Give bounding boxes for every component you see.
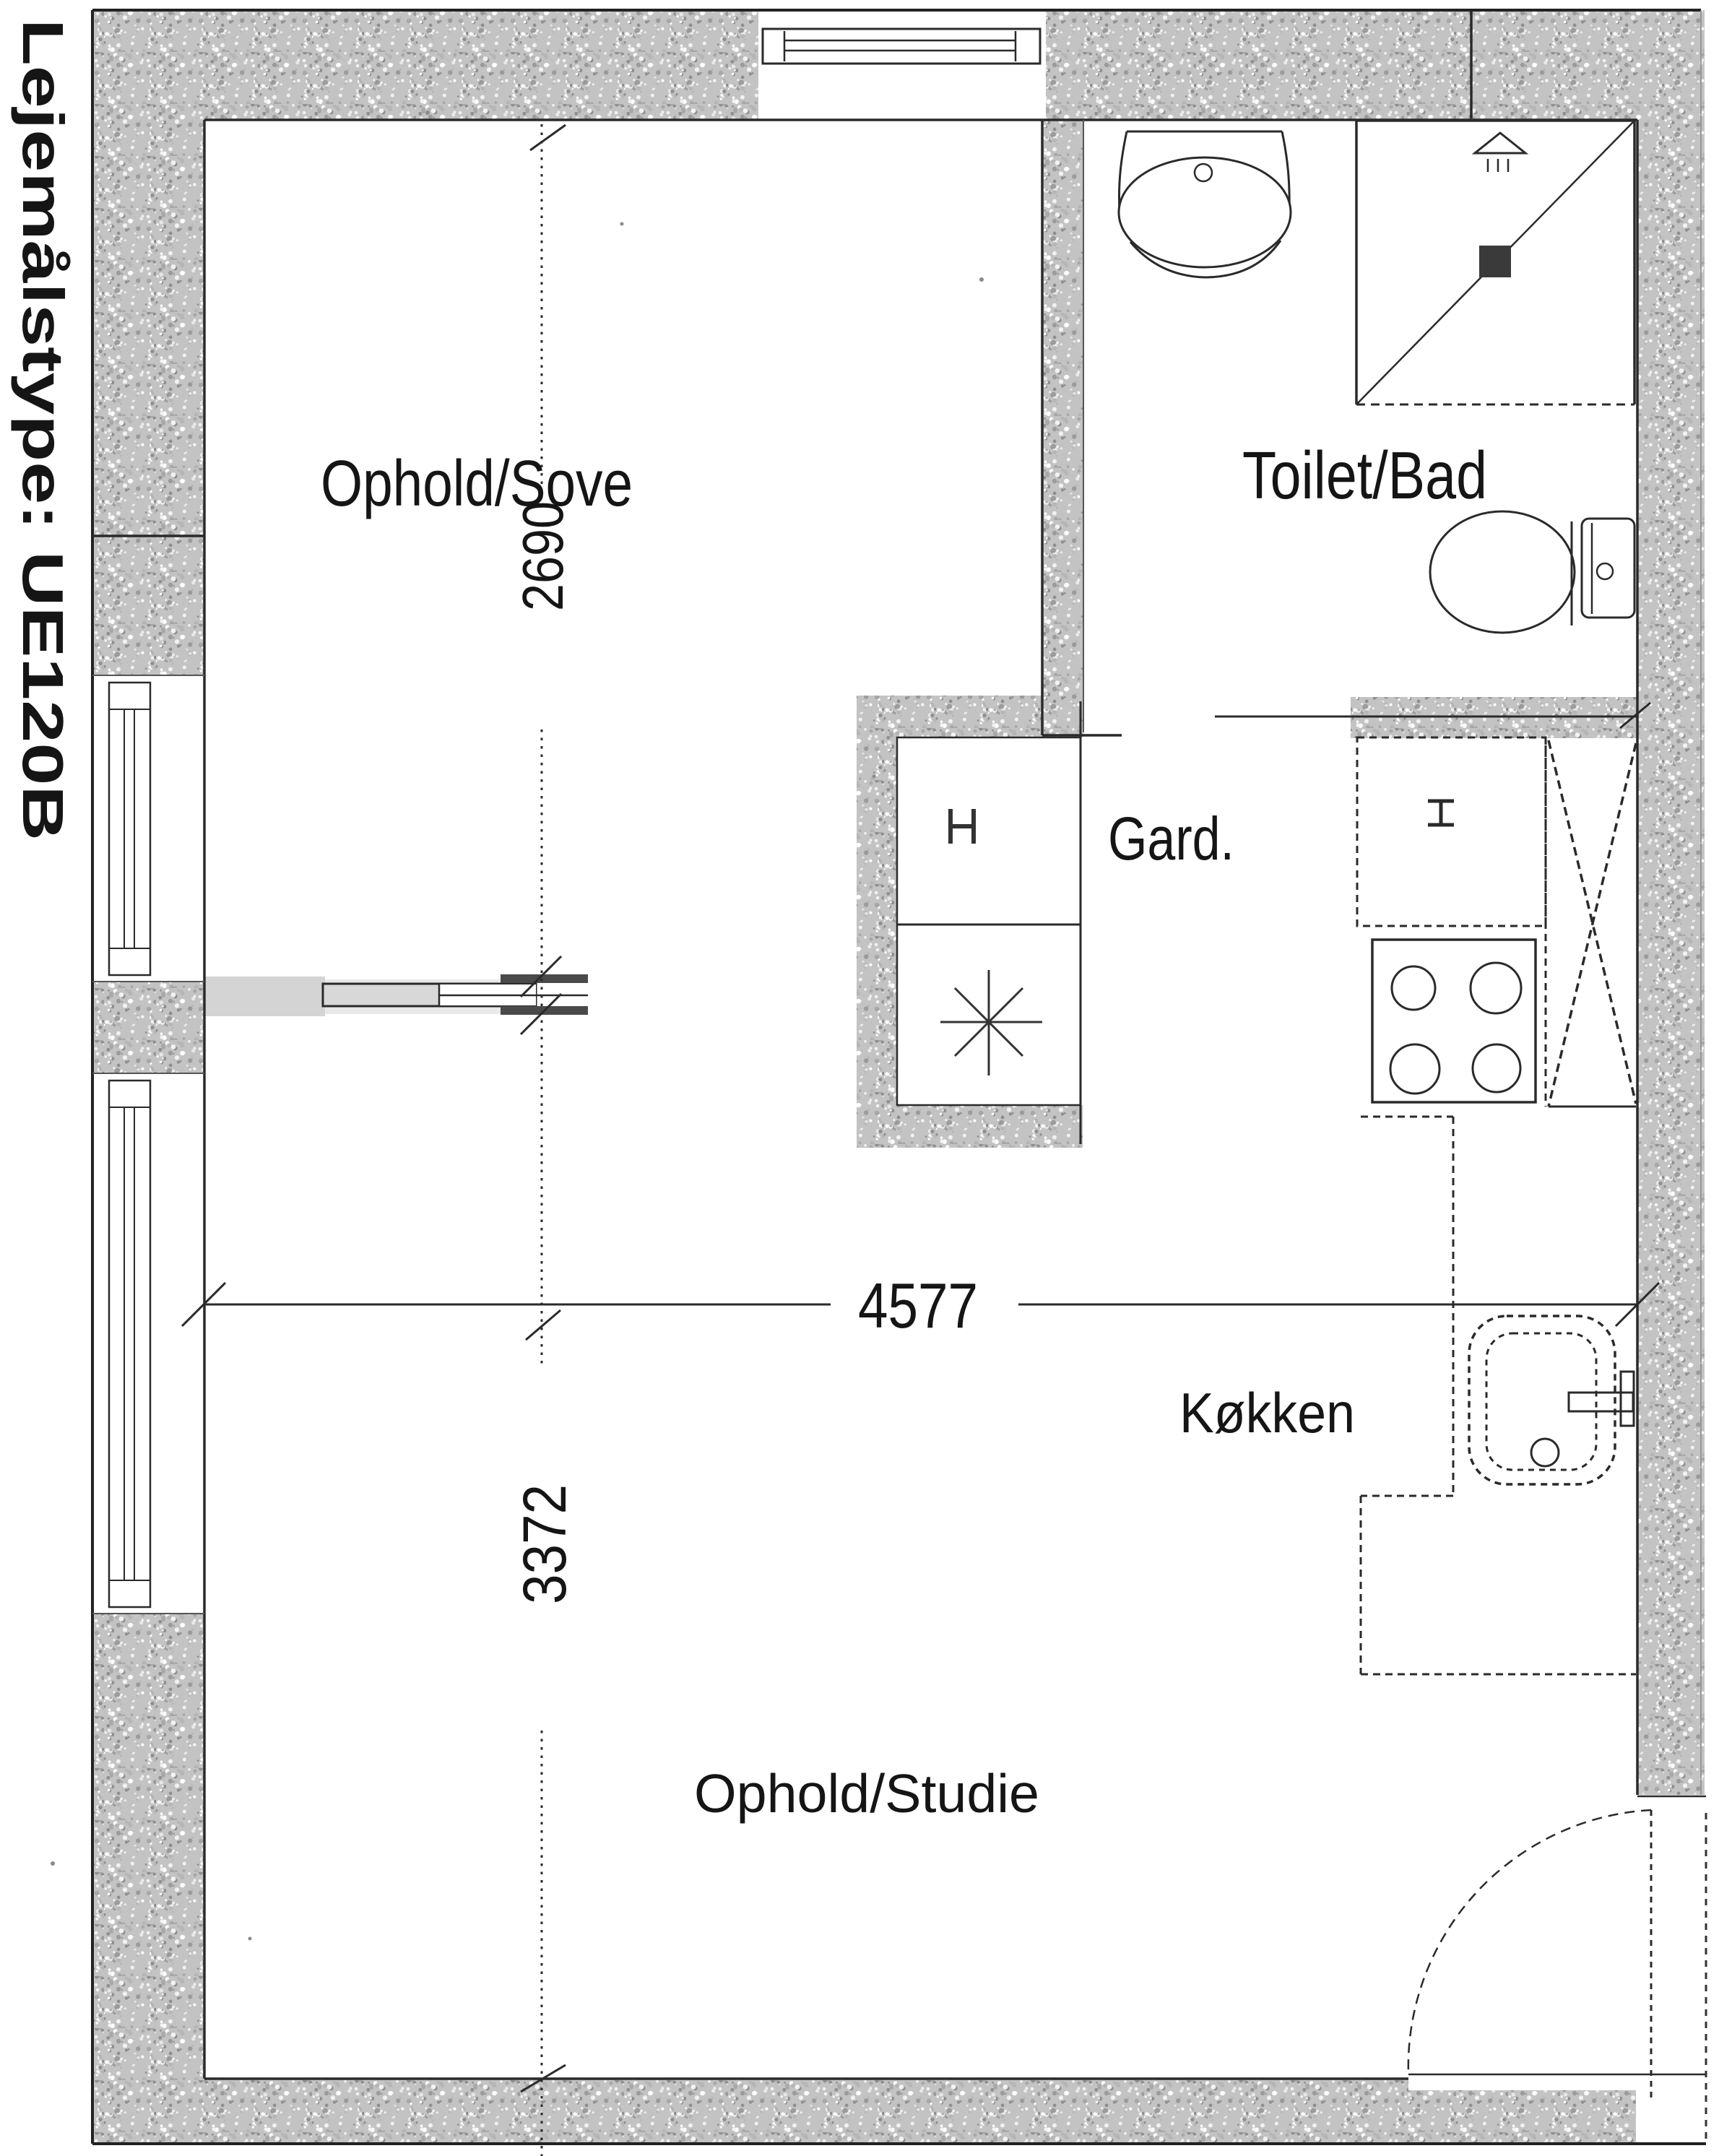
svg-text:Ophold/Studie: Ophold/Studie <box>694 1763 1039 1824</box>
svg-text:Ophold/Sove: Ophold/Sove <box>321 448 633 520</box>
svg-text:3372: 3372 <box>511 1484 579 1604</box>
svg-text:Gard.: Gard. <box>1108 805 1234 873</box>
svg-text:Lejemålstype: UE120B: Lejemålstype: UE120B <box>11 19 75 841</box>
svg-text:2690: 2690 <box>511 501 575 611</box>
svg-text:4577: 4577 <box>858 1270 978 1341</box>
svg-text:Køkken: Køkken <box>1179 1381 1355 1445</box>
svg-text:Toilet/Bad: Toilet/Bad <box>1242 438 1487 513</box>
